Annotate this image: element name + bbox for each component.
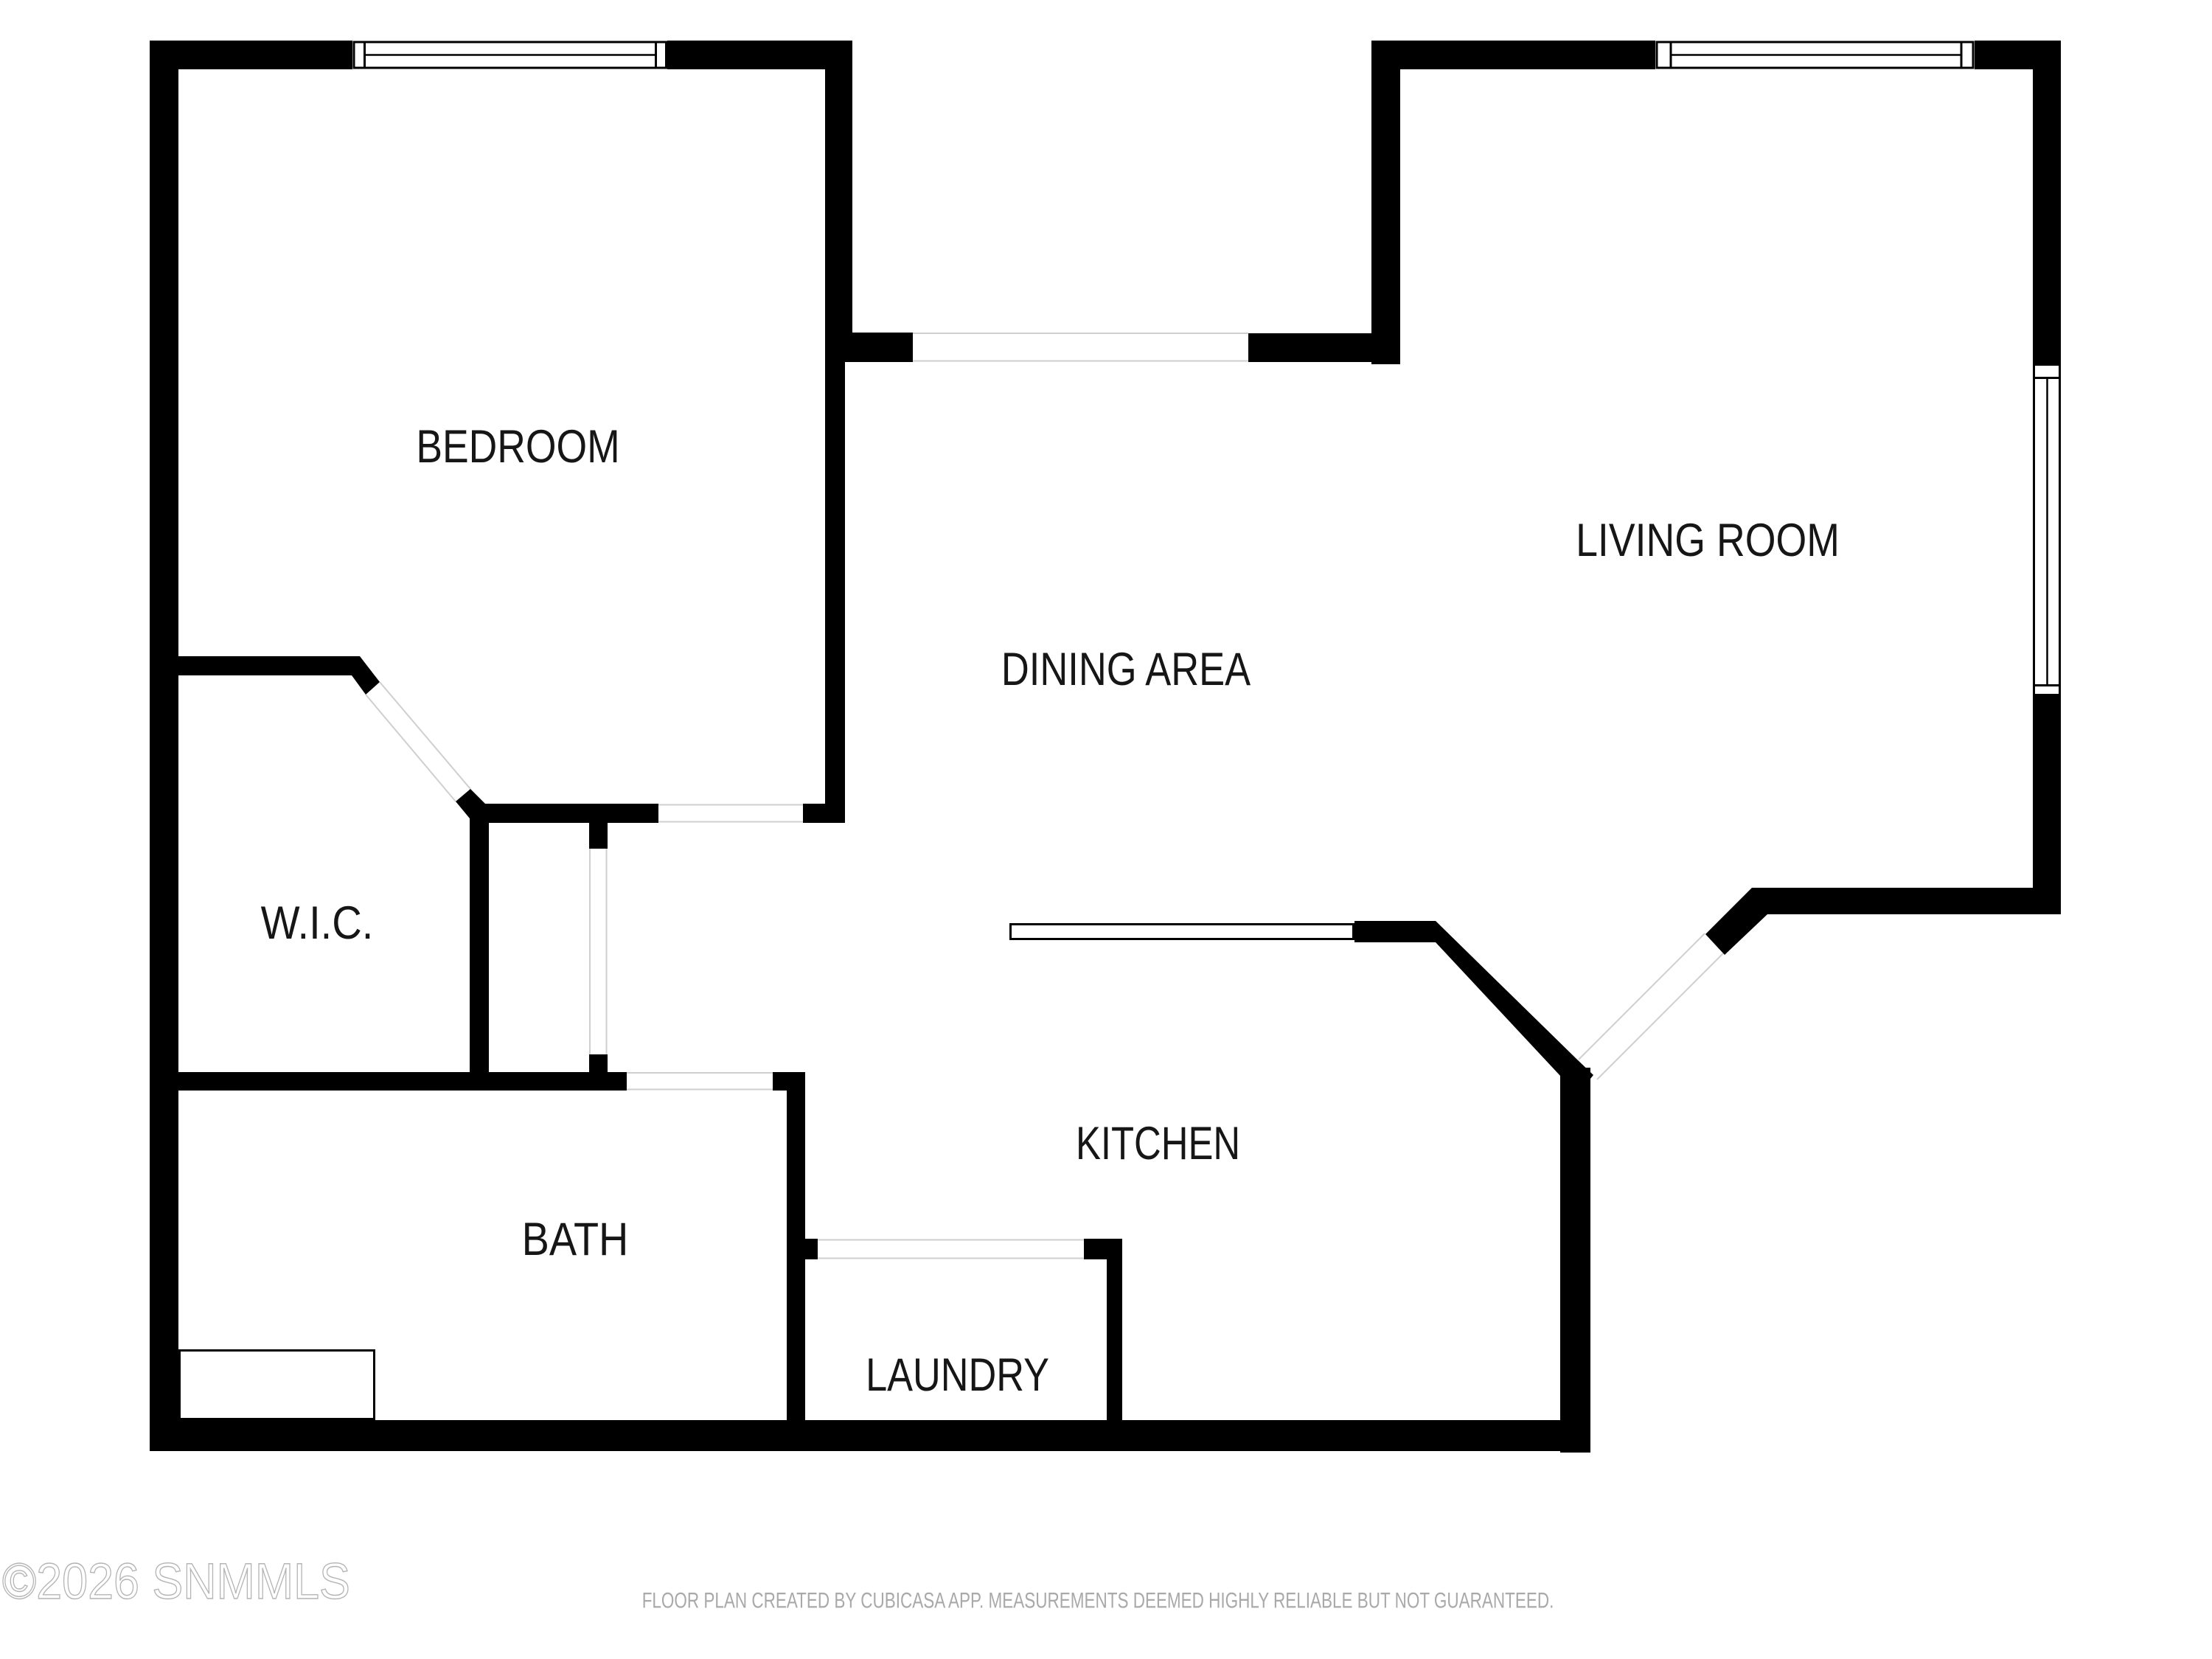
svg-text:DINING AREA: DINING AREA (1001, 644, 1251, 696)
svg-text:LIVING ROOM: LIVING ROOM (1576, 515, 1840, 566)
svg-text:©2026 SNMMLS: ©2026 SNMMLS (2, 1552, 350, 1609)
svg-text:LAUNDRY: LAUNDRY (866, 1350, 1049, 1402)
svg-text:KITCHEN: KITCHEN (1076, 1118, 1240, 1169)
svg-text:FLOOR PLAN CREATED BY CUBICASA: FLOOR PLAN CREATED BY CUBICASA APP. MEAS… (642, 1587, 1554, 1613)
svg-text:BEDROOM: BEDROOM (416, 421, 619, 473)
svg-text:W.I.C.: W.I.C. (261, 897, 374, 949)
svg-text:BATH: BATH (522, 1213, 629, 1265)
